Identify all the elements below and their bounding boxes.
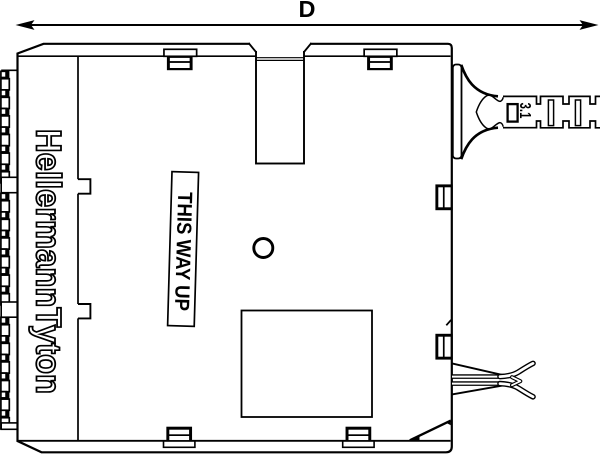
- svg-text:3.1: 3.1: [516, 103, 533, 119]
- svg-text:HellermannTyton: HellermannTyton: [29, 129, 69, 394]
- svg-text:D: D: [299, 0, 316, 22]
- svg-text:THIS WAY UP: THIS WAY UP: [170, 192, 196, 312]
